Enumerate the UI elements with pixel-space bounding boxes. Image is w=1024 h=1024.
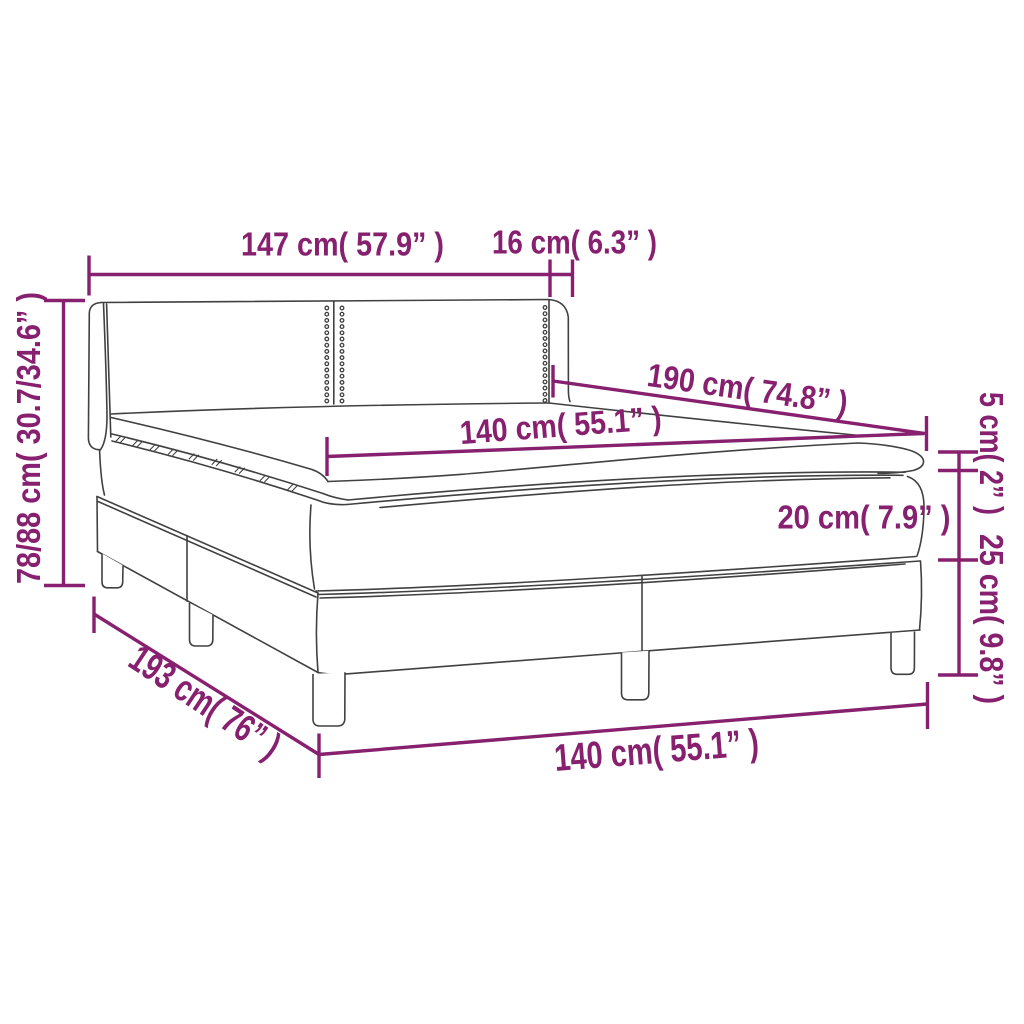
svg-text:147 cm( 57.9” ): 147 cm( 57.9” ) xyxy=(241,226,444,263)
svg-text:5 cm( 2” ): 5 cm( 2” ) xyxy=(973,392,1010,515)
svg-text:78/88 cm( 30.7/34.6” ): 78/88 cm( 30.7/34.6” ) xyxy=(10,292,47,584)
svg-text:25 cm( 9.8” ): 25 cm( 9.8” ) xyxy=(973,534,1010,704)
svg-text:16 cm( 6.3” ): 16 cm( 6.3” ) xyxy=(492,224,657,261)
svg-text:20 cm( 7.9” ): 20 cm( 7.9” ) xyxy=(778,499,951,536)
